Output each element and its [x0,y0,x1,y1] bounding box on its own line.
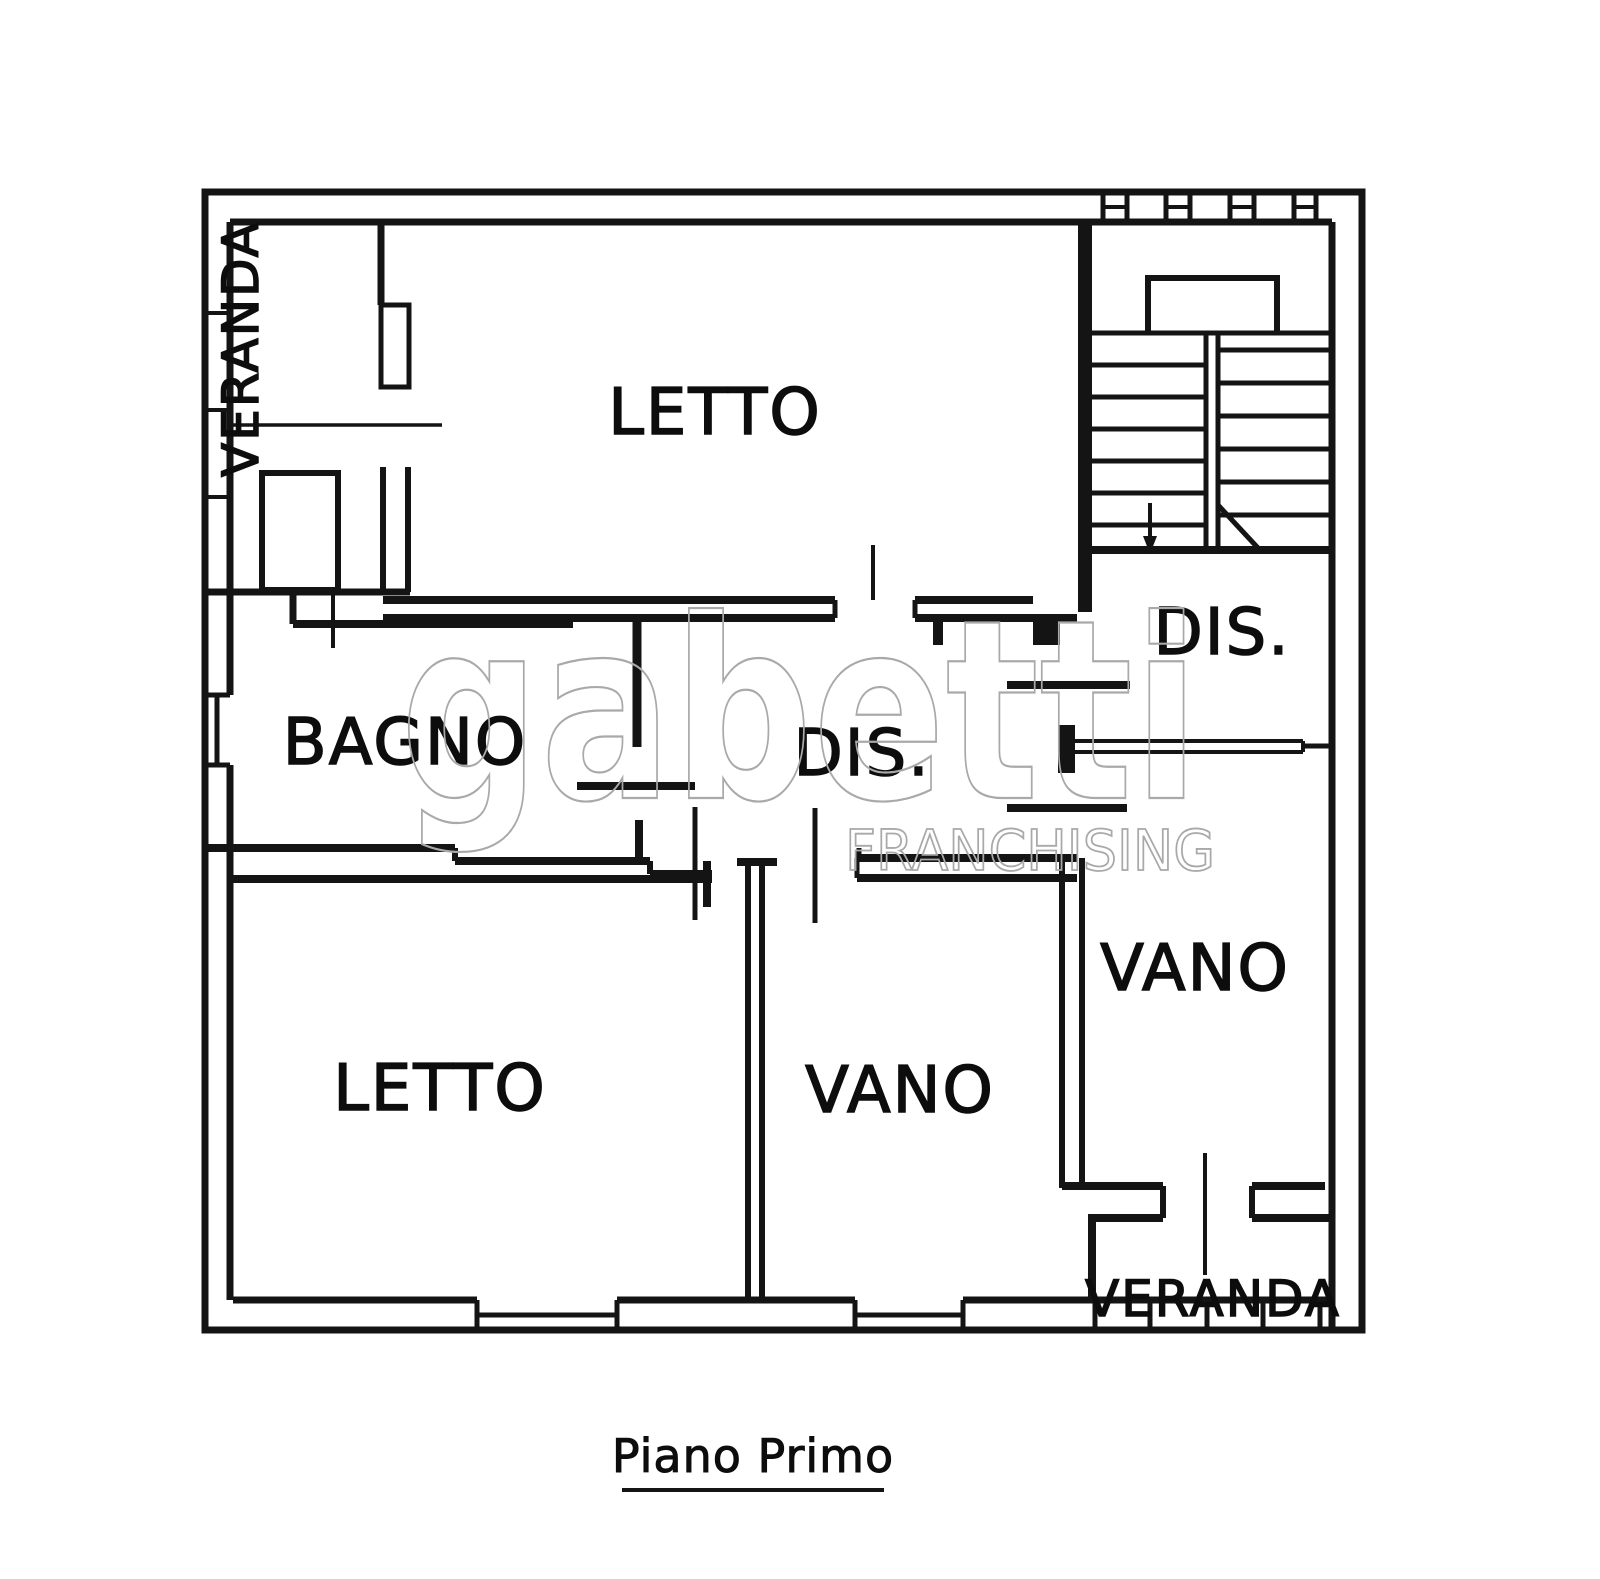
staircase [1078,193,1332,612]
room-label-veranda-bottom-right: VERANDA [1085,1270,1341,1328]
stair-break-line [1218,505,1258,548]
room-divider-wall [748,866,762,1300]
floor-plan-page: VERANDA LETTO DIS. BAGNO DIS. LETTO VANO… [0,0,1600,1579]
vano-right-walls [1062,858,1332,1300]
watermark-subtitle-text: FRANCHISING [845,819,1215,884]
room-label-veranda-top-left: VERANDA [212,221,270,477]
floor-plan-canvas: VERANDA LETTO DIS. BAGNO DIS. LETTO VANO… [0,0,1600,1579]
caption-group: Piano Primo [612,1429,894,1490]
floor-caption: Piano Primo [612,1429,894,1483]
top-wall-pillars [1103,193,1316,221]
stair-steps-right [1220,350,1332,515]
stair-landing [1148,278,1277,333]
room-label-vano-center: VANO [805,1054,995,1128]
stair-steps-left [1092,365,1206,525]
room-label-letto-bottom: LETTO [333,1052,547,1126]
room-label-letto-top: LETTO [608,376,822,450]
gabetti-watermark: gabetti FRANCHISING [400,566,1215,884]
room-label-vano-right: VANO [1100,932,1290,1006]
veranda-pillar [262,473,338,590]
stair-divider [1206,333,1218,550]
watermark-brand-text: gabetti [400,566,1200,857]
